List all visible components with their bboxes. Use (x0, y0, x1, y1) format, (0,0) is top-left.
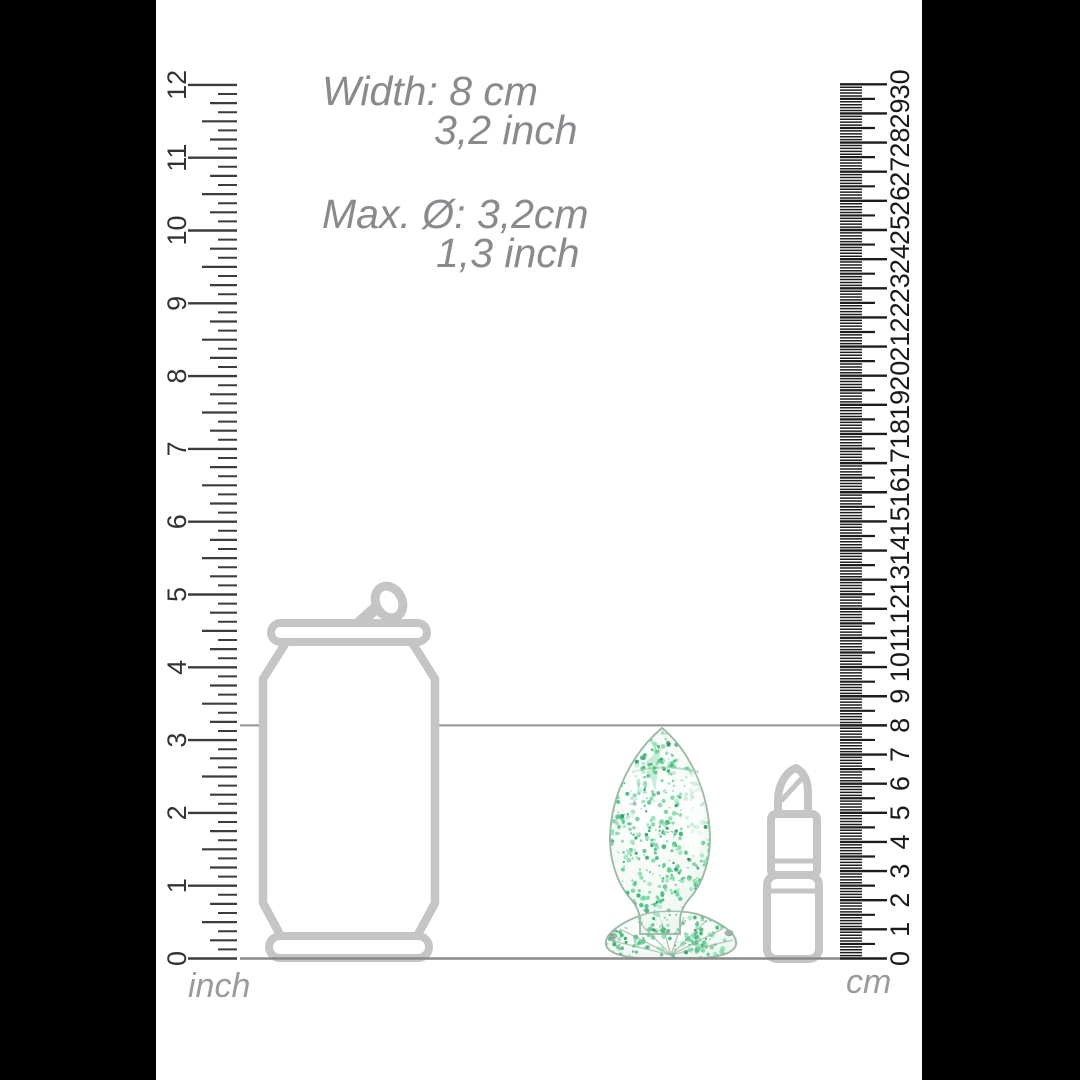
cm-number: 29 (885, 98, 915, 128)
glitter-dot (677, 845, 681, 849)
glitter-dot (615, 832, 618, 835)
plug-neck-highlight (655, 903, 662, 931)
glitter-dot (723, 796, 728, 801)
soda-can-outline (263, 581, 437, 958)
glitter-dot (658, 803, 663, 808)
glitter-dot (664, 810, 668, 814)
cm-number: 7 (885, 747, 915, 762)
glitter-dot (658, 865, 660, 867)
glitter-dot (631, 909, 635, 913)
glitter-dot (734, 733, 737, 736)
glitter-dot (603, 787, 607, 791)
glitter-dot (720, 740, 723, 743)
glitter-dot (614, 899, 618, 903)
glitter-dot (717, 798, 719, 800)
glitter-dot (629, 746, 631, 748)
cm-number: 4 (885, 834, 915, 849)
glitter-dot (670, 831, 672, 833)
inch-number: 5 (162, 587, 192, 602)
glitter-dot (640, 897, 644, 901)
glitter-dot (646, 898, 648, 900)
glitter-dot (674, 830, 678, 834)
glitter-dot (617, 775, 621, 779)
glitter-dot (662, 877, 665, 880)
glitter-dot (672, 790, 674, 792)
glitter-dot (687, 915, 692, 920)
glitter-dot (737, 888, 741, 892)
cm-number: 26 (885, 186, 915, 216)
glitter-dot (610, 744, 614, 748)
cm-number: 14 (885, 536, 915, 566)
glitter-dot (651, 904, 653, 906)
glitter-dot (620, 953, 622, 955)
glitter-dot (717, 819, 721, 823)
glitter-dot (735, 778, 738, 781)
glitter-dot (647, 823, 650, 826)
glitter-dot (719, 855, 723, 859)
glitter-dot (613, 944, 614, 945)
glitter-dot (675, 834, 677, 836)
glitter-dot (614, 917, 617, 920)
glitter-dot (666, 924, 670, 928)
glitter-dot (726, 903, 728, 905)
glitter-dot (615, 753, 618, 756)
cm-number: 21 (885, 332, 915, 362)
glitter-dot (617, 825, 621, 829)
glitter-dot (627, 858, 632, 863)
glitter-dot (627, 764, 630, 767)
glitter-dot (633, 906, 634, 907)
glitter-dot (679, 888, 680, 889)
inch-number: 8 (162, 369, 192, 384)
glitter-dot (685, 920, 687, 922)
glitter-dot (672, 771, 676, 775)
glitter-dot (701, 948, 705, 952)
glitter-dot (603, 949, 607, 953)
inch-ruler-numbers: 0123456789101112 (162, 70, 192, 966)
glitter-dot (724, 758, 727, 761)
glitter-dot (617, 812, 619, 814)
glitter-dot (737, 931, 742, 936)
glitter-dot (630, 850, 632, 852)
glitter-dot (619, 746, 621, 748)
glitter-dot (620, 737, 623, 740)
cm-number: 9 (885, 689, 915, 704)
glitter-dot (629, 733, 632, 736)
glitter-dot (664, 917, 666, 919)
glitter-dot (659, 875, 661, 877)
glitter-dot (658, 833, 661, 836)
glitter-dot (602, 836, 607, 841)
glitter-dot (675, 804, 678, 807)
glitter-dot (670, 892, 673, 895)
glitter-dot (605, 733, 607, 735)
glitter-dot (731, 752, 733, 754)
glitter-dot (706, 878, 708, 880)
glitter-dot (728, 902, 731, 905)
glitter-dot (614, 734, 617, 737)
glitter-dot (707, 838, 710, 841)
glitter-dot (620, 777, 623, 780)
glitter-dot (609, 885, 613, 889)
glitter-dot (671, 876, 674, 879)
glitter-dot (667, 759, 669, 761)
glitter-dot (730, 922, 733, 925)
glitter-dot (620, 946, 624, 950)
glitter-dot (658, 826, 660, 828)
glitter-dot (724, 921, 727, 924)
glitter-dot (725, 786, 730, 791)
glitter-dot (709, 938, 711, 940)
cm-number: 27 (885, 157, 915, 187)
glitter-dot (669, 807, 670, 808)
glitter-dot (606, 861, 608, 863)
glitter-dot (634, 881, 637, 884)
glitter-dot (621, 840, 624, 843)
glitter-dot (694, 764, 697, 767)
glitter-dot (665, 751, 669, 755)
glitter-dot (647, 800, 652, 805)
glitter-dot (611, 865, 612, 866)
glitter-dot (632, 833, 635, 836)
glitter-dot (723, 741, 727, 745)
glitter-dot (696, 921, 698, 923)
glitter-dot (694, 933, 697, 936)
glitter-dot (603, 805, 605, 807)
glitter-dot (672, 780, 675, 783)
glitter-dot (731, 903, 736, 908)
glitter-dot (679, 869, 682, 872)
glitter-dot (713, 860, 718, 865)
glitter-dot (710, 748, 714, 752)
glitter-dot (654, 851, 657, 854)
glitter-dot (678, 796, 681, 799)
glitter-dot (694, 949, 698, 953)
glitter-dot (610, 734, 613, 737)
glitter-dot (678, 836, 682, 840)
glitter-dot (613, 757, 615, 759)
glitter-dot (607, 914, 611, 918)
glitter-dot (687, 867, 689, 869)
glitter-dot (737, 848, 739, 850)
glitter-dot (617, 890, 622, 895)
glitter-dot (695, 864, 698, 867)
glitter-dot (627, 761, 631, 765)
glitter-dot (718, 913, 720, 915)
glitter-dot (643, 909, 645, 911)
glitter-dot (622, 735, 626, 739)
glitter-dot (655, 856, 659, 860)
glitter-dot (688, 901, 690, 903)
glitter-dot (724, 784, 727, 787)
glitter-dot (671, 870, 673, 872)
glitter-dot (696, 731, 701, 736)
glitter-dot (638, 747, 640, 749)
glitter-dot (704, 887, 707, 890)
glitter-dot (651, 822, 656, 827)
glitter-dot (621, 894, 626, 899)
glitter-dot (699, 932, 703, 936)
glitter-dot (660, 758, 663, 761)
glitter-dot (676, 739, 678, 741)
glitter-dot (633, 938, 637, 942)
glitter-dot (738, 923, 741, 926)
glitter-dot (668, 816, 672, 820)
glitter-dot (733, 809, 737, 813)
glitter-dot (699, 890, 701, 892)
can-top-rim (271, 623, 427, 642)
glitter-dot (676, 795, 678, 797)
cm-number: 19 (885, 390, 915, 420)
glitter-dot (625, 729, 628, 732)
glitter-dot (666, 743, 670, 747)
glitter-dot (608, 876, 611, 879)
glitter-dot (729, 840, 733, 844)
glitter-dot (708, 783, 712, 787)
glitter-dot (728, 728, 731, 731)
glitter-dot (729, 791, 732, 794)
glitter-dot (713, 918, 715, 920)
glitter-dot (613, 882, 616, 885)
glitter-dot (699, 949, 701, 951)
glitter-dot (662, 863, 666, 867)
glitter-dot (673, 890, 676, 893)
cm-number: 17 (885, 448, 915, 478)
glitter-dot (672, 755, 674, 757)
glitter-dot (645, 730, 650, 735)
glitter-dot (647, 882, 652, 887)
glitter-dot (721, 823, 726, 828)
glitter-dot (736, 741, 739, 744)
glitter-dot (620, 933, 624, 937)
glitter-dot (629, 954, 631, 956)
glitter-dot (692, 936, 694, 938)
glitter-dot (669, 822, 671, 824)
inch-number: 3 (162, 733, 192, 748)
glitter-dot (639, 903, 643, 907)
glitter-dot (722, 895, 724, 897)
glitter-dot (692, 909, 694, 911)
glitter-dot (623, 866, 625, 868)
glitter-dot (734, 885, 738, 889)
glitter-dot (652, 923, 655, 926)
inch-number: 7 (162, 441, 192, 456)
glitter-dot (634, 849, 636, 851)
glitter-dot (704, 893, 708, 897)
cm-number: 12 (885, 594, 915, 624)
glitter-dot (722, 761, 726, 765)
glitter-dot (732, 905, 735, 908)
glitter-dot (623, 782, 625, 784)
glitter-dot (642, 761, 646, 765)
glitter-dot (680, 827, 683, 830)
glitter-dot (675, 731, 679, 735)
glitter-dot (636, 856, 638, 858)
glitter-dot (630, 748, 633, 751)
glitter-dot (638, 889, 641, 892)
glitter-dot (706, 743, 708, 745)
glitter-dot (708, 863, 709, 864)
glitter-dot (652, 742, 657, 747)
glitter-dot (645, 856, 649, 860)
glitter-dot (610, 952, 612, 954)
cm-number: 24 (885, 244, 915, 274)
glitter-dot (693, 734, 698, 739)
glitter-dot (702, 749, 706, 753)
glitter-dot (636, 893, 640, 897)
inch-ruler-ticks (188, 85, 237, 959)
glitter-dot (679, 792, 682, 795)
glitter-dot (613, 918, 617, 922)
glitter-dot (650, 844, 653, 847)
glitter-dot (737, 810, 742, 815)
glitter-dot (714, 781, 717, 784)
glitter-dot (696, 746, 698, 748)
glitter-dot (661, 731, 664, 734)
glitter-dot (625, 750, 627, 752)
inch-number: 10 (162, 215, 192, 245)
glitter-dot (609, 807, 613, 811)
glitter-dot (719, 782, 723, 786)
glitter-dot (669, 914, 671, 916)
glitter-dot (629, 756, 631, 758)
glitter-dot (665, 738, 667, 740)
glitter-dot (714, 819, 719, 824)
glitter-dot (670, 849, 673, 852)
glitter-dot (714, 796, 717, 799)
glitter-dot (730, 785, 733, 788)
glitter-dot (614, 900, 619, 905)
glitter-dot (652, 873, 653, 874)
glitter-dot (730, 767, 732, 769)
glitter-dot (640, 941, 644, 945)
glitter-dot (724, 794, 728, 798)
inch-number: 4 (162, 660, 192, 675)
glitter-dot (720, 755, 722, 757)
glitter-dot (613, 905, 615, 907)
glitter-dot (738, 828, 740, 830)
glitter-dot (700, 765, 703, 768)
glitter-dot (606, 749, 608, 751)
cm-number: 25 (885, 215, 915, 245)
glitter-dot (732, 740, 737, 745)
glitter-dot (651, 728, 655, 732)
glitter-dot (630, 832, 632, 834)
glitter-dot (617, 727, 619, 729)
glitter-dot (728, 744, 730, 746)
glitter-dot (618, 944, 620, 946)
glitter-dot (603, 867, 606, 870)
cm-number: 18 (885, 419, 915, 449)
glitter-dot (721, 744, 725, 748)
glitter-dot (645, 810, 647, 812)
glitter-dot (721, 733, 723, 735)
glitter-dot (683, 727, 688, 732)
glitter-dot (712, 788, 714, 790)
glitter-dot (661, 763, 663, 765)
glitter-dot (622, 880, 624, 882)
cm-number: 13 (885, 565, 915, 595)
glitter-dot (695, 922, 699, 926)
glitter-dot (725, 742, 729, 746)
glitter-dot (616, 922, 619, 925)
glitter-dot (662, 898, 665, 901)
glitter-dot (719, 841, 721, 843)
glitter-dot (722, 898, 727, 903)
glitter-dot (610, 887, 614, 891)
glitter-dot (627, 813, 629, 815)
glitter-dot (655, 829, 657, 831)
glitter-dot (672, 844, 676, 848)
glitter-dot (607, 920, 611, 924)
cm-number: 6 (885, 776, 915, 791)
glitter-dot (606, 813, 610, 817)
glitter-dot (679, 813, 683, 817)
glitter-dot (663, 789, 666, 792)
glitter-dot (695, 936, 699, 940)
glitter-dot (733, 888, 737, 892)
glitter-dot (716, 859, 721, 864)
glitter-dot (646, 792, 647, 793)
glitter-dot (627, 763, 630, 766)
glitter-dot (696, 727, 699, 730)
glitter-dot (701, 944, 704, 947)
glitter-dot (632, 747, 636, 751)
glitter-dot (666, 840, 668, 842)
glitter-dot (709, 903, 714, 908)
glitter-dot (622, 902, 626, 906)
glitter-dot (624, 897, 628, 901)
inch-number: 11 (162, 144, 192, 172)
glitter-dot (648, 829, 651, 832)
glitter-dot (723, 886, 727, 890)
glitter-dot (619, 756, 622, 759)
glitter-dot (650, 839, 653, 842)
glitter-dot (662, 830, 664, 832)
glitter-dot (626, 752, 631, 757)
glitter-dot (660, 836, 662, 838)
glitter-dot (736, 850, 740, 854)
glitter-dot (615, 815, 620, 820)
glitter-dot (661, 744, 666, 749)
glitter-dot (735, 750, 737, 752)
cm-number: 2 (885, 893, 915, 908)
glitter-dot (665, 879, 669, 883)
glitter-dot (730, 869, 732, 871)
cm-number: 8 (885, 718, 915, 733)
glitter-dot (626, 738, 629, 741)
glitter-dot (736, 745, 740, 749)
glitter-dot (627, 822, 630, 825)
glitter-dot (724, 840, 727, 843)
glitter-dot (660, 878, 662, 880)
glitter-dot (714, 744, 718, 748)
glitter-dot (710, 872, 713, 875)
glitter-dot (656, 791, 660, 795)
glitter-dot (631, 857, 634, 860)
glitter-dot (705, 765, 706, 766)
glitter-dot (616, 800, 620, 804)
glitter-dot (681, 735, 683, 737)
glitter-dot (722, 911, 727, 916)
annotation-width-inch: 3,2 inch (434, 107, 578, 153)
glitter-dot (734, 793, 739, 798)
glitter-dot (738, 819, 740, 821)
glitter-dot (733, 849, 738, 854)
glitter-dot (711, 847, 714, 850)
glitter-dot (620, 814, 624, 818)
glitter-dot (607, 778, 612, 783)
